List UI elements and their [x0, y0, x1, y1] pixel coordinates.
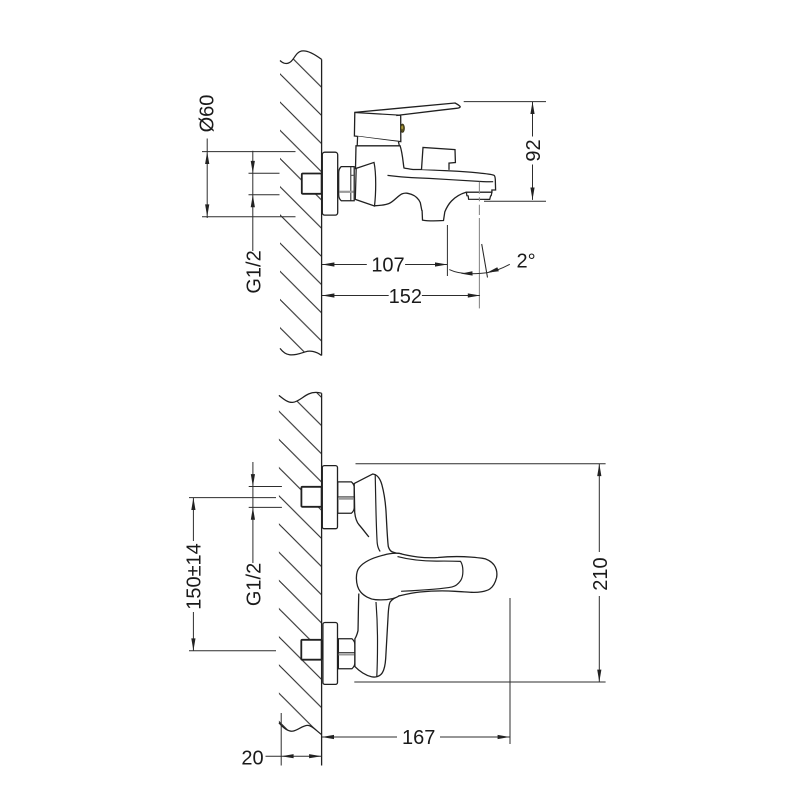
svg-text:210: 210: [590, 557, 612, 590]
svg-text:Ø60: Ø60: [196, 95, 218, 133]
svg-text:G1/2: G1/2: [244, 563, 266, 606]
svg-text:150±14: 150±14: [183, 543, 205, 610]
svg-text:107: 107: [371, 255, 404, 277]
svg-text:152: 152: [389, 286, 422, 308]
svg-text:92: 92: [523, 139, 545, 161]
svg-text:2°: 2°: [517, 251, 536, 273]
svg-text:G1/2: G1/2: [244, 250, 266, 293]
svg-text:20: 20: [241, 747, 263, 769]
svg-text:167: 167: [402, 727, 435, 749]
